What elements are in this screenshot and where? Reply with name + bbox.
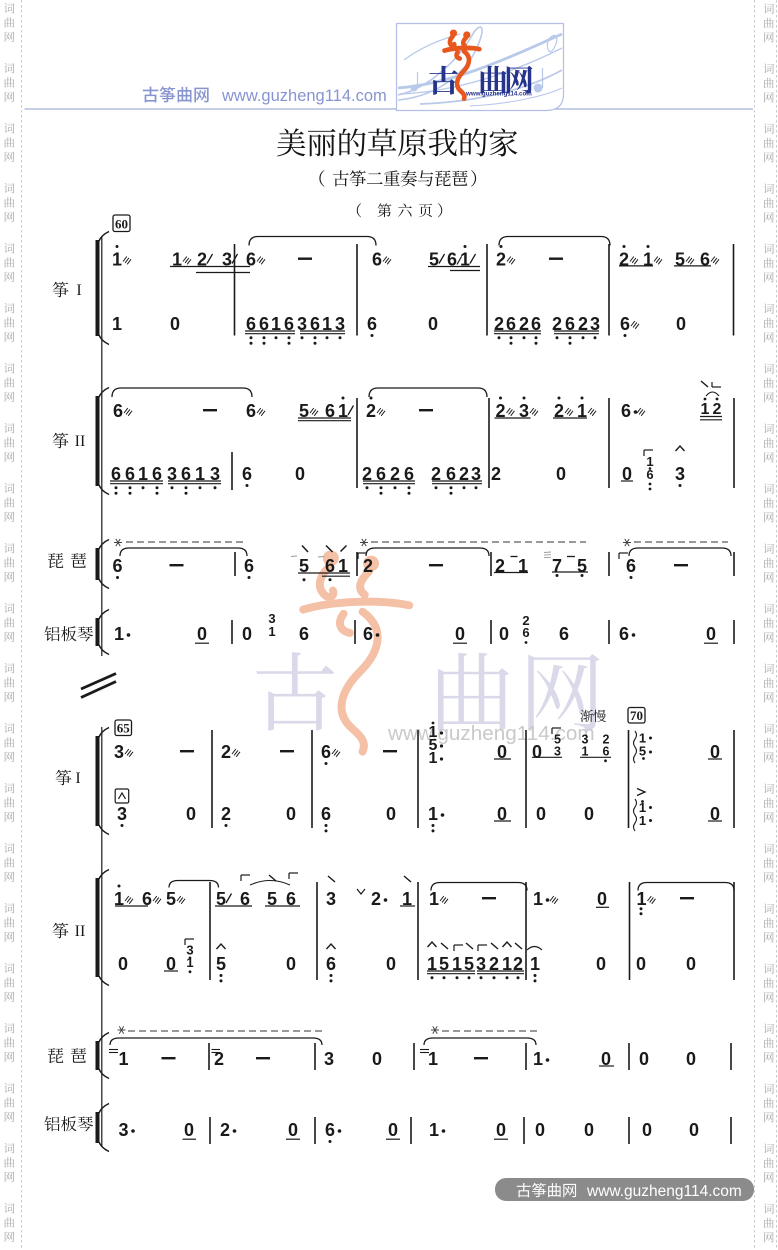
svg-text:6: 6 xyxy=(325,1120,335,1140)
svg-text:1: 1 xyxy=(639,813,646,828)
svg-text:0: 0 xyxy=(372,1049,382,1069)
svg-text:2: 2 xyxy=(371,889,381,909)
svg-text:1: 1 xyxy=(701,401,710,418)
svg-text:0: 0 xyxy=(499,624,509,644)
svg-text:6: 6 xyxy=(321,742,331,762)
svg-text:2: 2 xyxy=(363,556,373,576)
svg-text:0: 0 xyxy=(186,804,196,824)
svg-text:II: II xyxy=(75,923,86,940)
svg-text:0: 0 xyxy=(636,954,646,974)
svg-text:6: 6 xyxy=(620,314,630,334)
svg-text:II: II xyxy=(75,433,86,450)
svg-text:0: 0 xyxy=(686,954,696,974)
svg-text:1: 1 xyxy=(428,804,438,824)
svg-text:0: 0 xyxy=(532,742,542,762)
svg-text:1: 1 xyxy=(186,955,193,970)
svg-text:2: 2 xyxy=(221,804,231,824)
svg-text:1: 1 xyxy=(268,624,275,639)
svg-text:6: 6 xyxy=(367,314,377,334)
svg-text:6: 6 xyxy=(626,556,636,576)
svg-text:1: 1 xyxy=(533,889,543,909)
svg-text:3: 3 xyxy=(326,889,336,909)
svg-text:2: 2 xyxy=(221,742,231,762)
svg-text:0: 0 xyxy=(556,464,566,484)
svg-text:0: 0 xyxy=(118,954,128,974)
svg-text:1: 1 xyxy=(112,314,122,334)
svg-text:6: 6 xyxy=(522,625,529,640)
svg-text:7: 7 xyxy=(552,556,562,576)
svg-text:2: 2 xyxy=(713,401,722,418)
svg-text:6: 6 xyxy=(326,954,336,974)
svg-text:0: 0 xyxy=(455,624,465,644)
svg-text:0: 0 xyxy=(686,1049,696,1069)
svg-text:0: 0 xyxy=(386,954,396,974)
svg-text:2: 2 xyxy=(214,1049,224,1069)
svg-text:0: 0 xyxy=(496,1120,506,1140)
svg-text:1: 1 xyxy=(533,1049,543,1069)
svg-text:6: 6 xyxy=(646,467,653,482)
svg-text:3: 3 xyxy=(117,804,127,824)
svg-text:0: 0 xyxy=(535,1120,545,1140)
svg-text:0: 0 xyxy=(428,314,438,334)
svg-text:3: 3 xyxy=(324,1049,334,1069)
svg-text:3: 3 xyxy=(554,745,561,759)
svg-text:0: 0 xyxy=(242,624,252,644)
svg-text:0: 0 xyxy=(597,889,607,909)
svg-text:60: 60 xyxy=(115,216,128,231)
svg-text:0: 0 xyxy=(584,1120,594,1140)
svg-text:0: 0 xyxy=(288,1120,298,1140)
svg-text:70: 70 xyxy=(630,708,643,723)
svg-text:6: 6 xyxy=(246,401,256,421)
svg-text:6: 6 xyxy=(372,250,382,270)
svg-text:2: 2 xyxy=(491,464,501,484)
svg-text:6: 6 xyxy=(363,624,373,644)
svg-text:I: I xyxy=(76,282,81,299)
svg-text:1: 1 xyxy=(118,1049,128,1069)
svg-text:1: 1 xyxy=(428,1049,438,1069)
svg-text:0: 0 xyxy=(295,464,305,484)
svg-text:5: 5 xyxy=(639,744,646,759)
svg-text:0: 0 xyxy=(170,314,180,334)
svg-text:1: 1 xyxy=(582,745,589,759)
svg-text:5: 5 xyxy=(577,556,587,576)
svg-text:1: 1 xyxy=(114,624,124,644)
svg-text:6: 6 xyxy=(246,250,256,270)
svg-text:6: 6 xyxy=(112,556,122,576)
svg-text:0: 0 xyxy=(584,804,594,824)
svg-text:5: 5 xyxy=(216,954,226,974)
svg-text:6: 6 xyxy=(321,804,331,824)
svg-text:0: 0 xyxy=(596,954,606,974)
svg-text:2: 2 xyxy=(220,1120,230,1140)
svg-text:6: 6 xyxy=(559,624,569,644)
svg-text:0: 0 xyxy=(676,314,686,334)
svg-text:6: 6 xyxy=(113,401,123,421)
svg-text:0: 0 xyxy=(286,954,296,974)
svg-text:2: 2 xyxy=(496,250,506,270)
svg-text:0: 0 xyxy=(536,804,546,824)
svg-text:6: 6 xyxy=(603,745,610,759)
svg-text:0: 0 xyxy=(197,624,207,644)
svg-text:1: 1 xyxy=(429,889,439,909)
svg-text:1: 1 xyxy=(429,1120,439,1140)
svg-text:www.guzheng114.com: www.guzheng114.com xyxy=(221,87,387,105)
svg-text:0: 0 xyxy=(689,1120,699,1140)
svg-text:0: 0 xyxy=(642,1120,652,1140)
svg-text:65: 65 xyxy=(117,720,131,735)
svg-text:6: 6 xyxy=(244,556,254,576)
svg-text:1: 1 xyxy=(636,889,646,909)
svg-text:3: 3 xyxy=(114,742,124,762)
svg-text:6: 6 xyxy=(299,624,309,644)
svg-text:1: 1 xyxy=(530,954,540,974)
svg-text:3: 3 xyxy=(118,1120,128,1140)
svg-text:www.guzheng114.com: www.guzheng114.com xyxy=(586,1183,742,1200)
svg-text:I: I xyxy=(75,770,80,787)
svg-text:0: 0 xyxy=(706,624,716,644)
svg-text:6: 6 xyxy=(242,464,252,484)
svg-text:3: 3 xyxy=(675,464,685,484)
svg-text:0: 0 xyxy=(388,1120,398,1140)
svg-text:0: 0 xyxy=(286,804,296,824)
svg-text:5: 5 xyxy=(166,889,176,909)
svg-text:1: 1 xyxy=(429,750,438,767)
svg-text:0: 0 xyxy=(386,804,396,824)
svg-text:6: 6 xyxy=(619,624,629,644)
svg-text:1: 1 xyxy=(112,250,122,270)
svg-text:0: 0 xyxy=(184,1120,194,1140)
svg-text:2: 2 xyxy=(366,401,376,421)
svg-text:www.guzheng114.com: www.guzheng114.com xyxy=(465,91,532,98)
svg-text:0: 0 xyxy=(639,1049,649,1069)
svg-text:6: 6 xyxy=(621,401,631,421)
